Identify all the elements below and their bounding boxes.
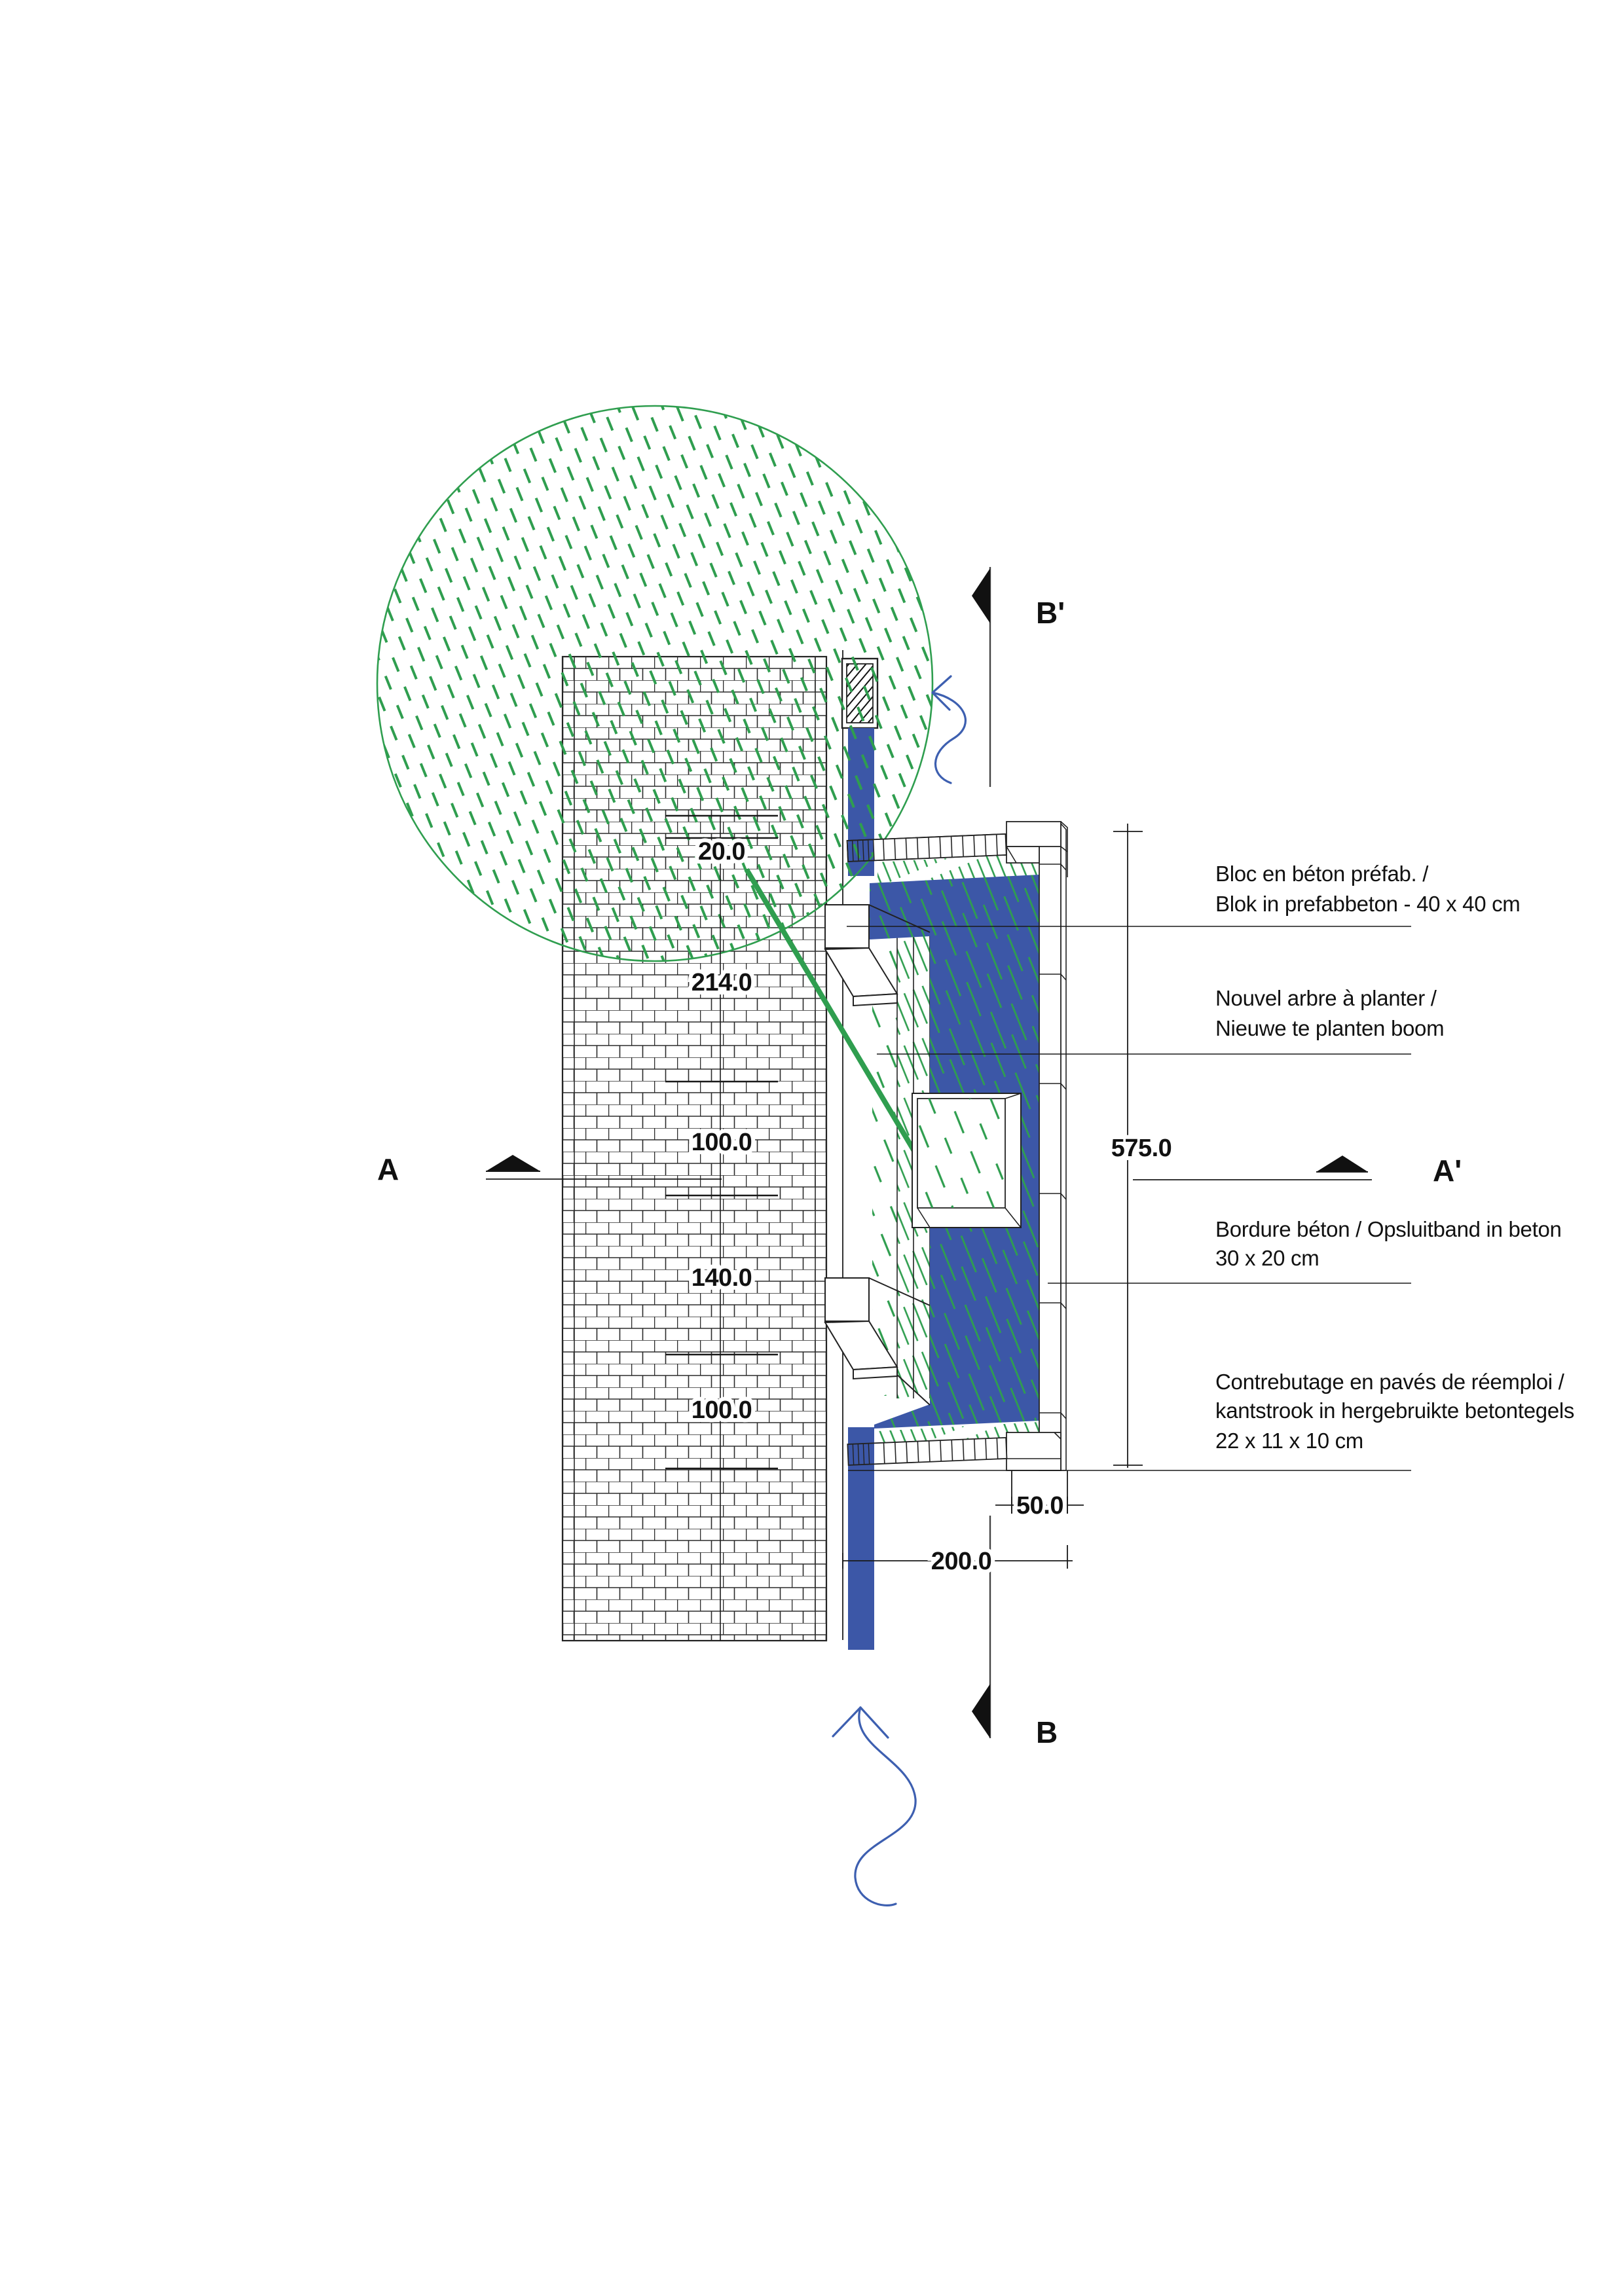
annotation-bloc-line1: Bloc en béton préfab. /: [1215, 862, 1429, 886]
annotation-arbre-line1: Nouvel arbre à planter /: [1215, 986, 1437, 1010]
annotation-contrebutage-line3: 22 x 11 x 10 cm: [1215, 1429, 1363, 1453]
tree-canopy: [377, 406, 932, 961]
annotation-texts: Bloc en béton préfab. / Blok in prefabbe…: [1215, 862, 1574, 1453]
dim-100b-label: 100.0: [692, 1396, 752, 1424]
flow-arrow-top: [932, 676, 965, 783]
annotation-bordure-line1: Bordure béton / Opsluitband in beton: [1215, 1217, 1562, 1241]
annotation-bloc-line2: Blok in prefabbeton - 40 x 40 cm: [1215, 892, 1521, 916]
drawing-page: 20.0 214.0 100.0 140.0 100.0 575.0 50.0 …: [0, 0, 1624, 2296]
dim-575-label: 575.0: [1111, 1135, 1172, 1162]
dim-100a-label: 100.0: [692, 1129, 752, 1156]
kerb-corner-bottom: [1006, 1432, 1061, 1470]
annotation-contrebutage-line1: Contrebutage en pavés de réemploi /: [1215, 1370, 1565, 1394]
annotation-arbre-line2: Nieuwe te planten boom: [1215, 1016, 1444, 1040]
section-label-a: A: [377, 1152, 399, 1186]
section-label-b-prime: B': [1036, 596, 1065, 630]
dim-20-label: 20.0: [698, 838, 745, 866]
dim-140-label: 140.0: [692, 1264, 752, 1292]
dim-214-label: 214.0: [692, 969, 752, 996]
plan-detail-drawing: 20.0 214.0 100.0 140.0 100.0 575.0 50.0 …: [0, 0, 1624, 2296]
kerb-strip: [1039, 824, 1066, 1470]
annotation-bordure-line2: 30 x 20 cm: [1215, 1246, 1319, 1270]
recess-notch: [912, 1093, 1021, 1228]
dim-50-label: 50.0: [1016, 1492, 1063, 1520]
blue-edge-strip-bottom: [848, 1427, 874, 1650]
section-label-b: B: [1036, 1715, 1058, 1749]
flow-arrow-bottom: [833, 1707, 915, 1905]
dim-200-label: 200.0: [931, 1548, 992, 1575]
annotation-contrebutage-line2: kantstrook in hergebruikte betontegels: [1215, 1398, 1574, 1423]
section-marker-b-prime: [972, 567, 990, 787]
section-label-a-prime: A': [1433, 1154, 1462, 1188]
